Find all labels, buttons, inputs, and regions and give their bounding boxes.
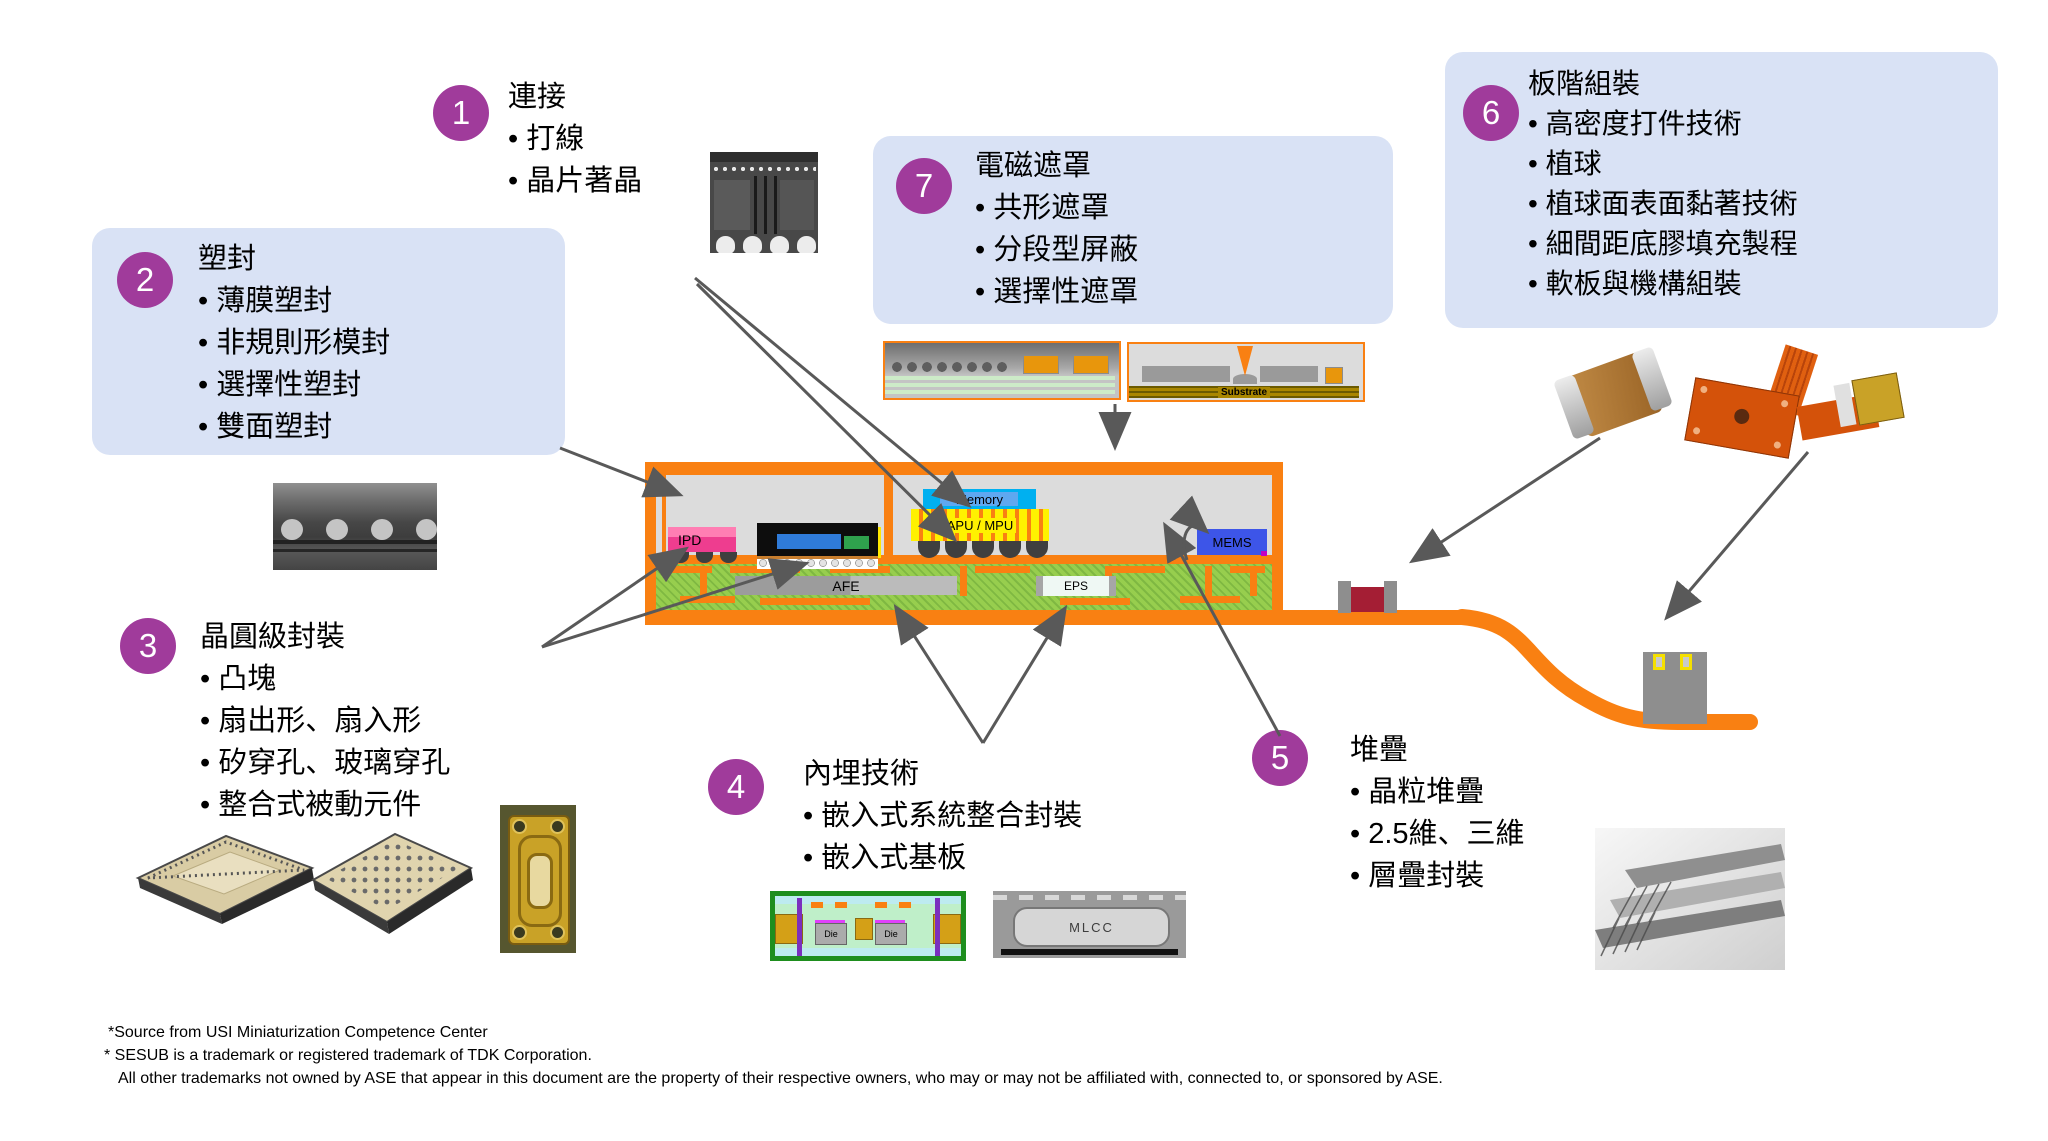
substrate-label: Substrate (1218, 387, 1270, 398)
copper-trace (1230, 566, 1265, 573)
bullet-item: 晶片著晶 (508, 160, 642, 202)
die-block: Die (815, 923, 847, 945)
bullet-item: 高密度打件技術 (1528, 104, 1798, 144)
ipd-block: IPD (668, 527, 736, 552)
photo-wire-bond (710, 152, 818, 253)
bullet-item: 植球 (1528, 144, 1798, 184)
bullet-item: 雙面塑封 (198, 406, 390, 448)
callout-5-title: 堆疊 (1350, 729, 1525, 771)
shield-via-line (662, 475, 666, 557)
microbump-row (757, 556, 878, 569)
footnote-sesub: * SESUB is a trademark or registered tra… (104, 1045, 592, 1067)
photo-embedded-mlcc: MLCC (993, 891, 1186, 958)
photo-embedded-die: Die Die (770, 891, 966, 961)
photo-wlcsp-top (128, 824, 323, 926)
callout-2-bullets: 薄膜塑封非規則形模封選擇性塑封雙面塑封 (198, 280, 390, 448)
afe-block: AFE (735, 576, 957, 595)
copper-trace (760, 598, 870, 605)
bullet-item: 植球面表面黏著技術 (1528, 184, 1798, 224)
callout-7-bullets: 共形遮罩分段型屏蔽選擇性遮罩 (975, 187, 1138, 313)
eps-label: EPS (1064, 580, 1088, 592)
bullet-item: 軟板與機構組裝 (1528, 264, 1798, 304)
step-badge-4: 4 (708, 759, 764, 815)
copper-via (960, 566, 967, 596)
callout-4: 內埋技術 嵌入式系統整合封裝嵌入式基板 (803, 753, 1082, 879)
callout-5: 堆疊 晶粒堆疊2.5維、三維層疊封裝 (1350, 729, 1525, 897)
photo-ipd-component (500, 805, 576, 953)
ipd-label: IPD (678, 533, 701, 547)
connector-post (1338, 581, 1351, 613)
callout-7-title: 電磁遮罩 (975, 145, 1138, 187)
diagram-conformal-shield (883, 341, 1121, 400)
bullet-item: 晶粒堆疊 (1350, 771, 1525, 813)
substrate-top-layer (656, 555, 1272, 564)
callout-3-bullets: 凸塊扇出形、扇入形矽穿孔、玻璃穿孔整合式被動元件 (200, 658, 450, 826)
step-badge-1: 1 (433, 85, 489, 141)
mems-label: MEMS (1213, 536, 1252, 549)
connector-pad (1680, 654, 1692, 670)
shield-wedge (1237, 346, 1253, 376)
callout-3-title: 晶圓級封裝 (200, 616, 450, 658)
package-shield-top (645, 462, 1283, 475)
step-badge-2: 2 (117, 252, 173, 308)
copper-trace (1060, 598, 1130, 605)
eps-block: EPS (1036, 576, 1116, 596)
copper-trace (680, 596, 735, 603)
bullet-item: 選擇性遮罩 (975, 271, 1138, 313)
apu-mpu-block: APU / MPU (911, 509, 1049, 541)
die-block: Die (875, 923, 907, 945)
edge-sliver (878, 527, 881, 558)
callout-4-title: 內埋技術 (803, 753, 1082, 795)
die-inner-green (844, 536, 869, 549)
copper-via (1250, 568, 1257, 596)
step-badge-7: 7 (896, 158, 952, 214)
arrow-board-right (1668, 452, 1808, 616)
flip-chip-die (757, 523, 878, 558)
bullet-item: 凸塊 (200, 658, 450, 700)
copper-trace (1180, 596, 1240, 603)
bullet-item: 矽穿孔、玻璃穿孔 (200, 742, 450, 784)
mlcc-body: MLCC (1013, 907, 1170, 947)
copper-trace (1110, 566, 1165, 573)
mems-dot (1261, 551, 1267, 556)
connector-post (1384, 581, 1397, 613)
callout-4-bullets: 嵌入式系統整合封裝嵌入式基板 (803, 795, 1082, 879)
arrow-embed-afe (897, 609, 983, 743)
bullet-item: 層疊封裝 (1350, 855, 1525, 897)
apu-mpu-label: APU / MPU (944, 518, 1016, 533)
footnote-source: *Source from USI Miniaturization Compete… (108, 1022, 488, 1044)
photo-wlcsp-bottom (305, 820, 483, 942)
bullet-item: 薄膜塑封 (198, 280, 390, 322)
die-inner-blue (777, 534, 841, 549)
flex-connector-block (1643, 652, 1707, 724)
arrow-board-left (1414, 438, 1600, 560)
afe-label: AFE (832, 579, 859, 593)
copper-via (700, 566, 707, 596)
callout-1-bullets: 打線晶片著晶 (508, 118, 642, 202)
memory-block: Memory (923, 489, 1036, 509)
photo-solder-balls (273, 483, 437, 570)
copper-via (1205, 566, 1212, 596)
callout-3: 晶圓級封裝 凸塊扇出形、扇入形矽穿孔、玻璃穿孔整合式被動元件 (200, 616, 450, 826)
footnote-trademarks: All other trademarks not owned by ASE th… (118, 1068, 1443, 1090)
callout-6: 板階組裝 高密度打件技術植球植球面表面黏著技術細間距底膠填充製程軟板與機構組裝 (1528, 64, 1798, 304)
bullet-item: 共形遮罩 (975, 187, 1138, 229)
bullet-item: 嵌入式系統整合封裝 (803, 795, 1082, 837)
photo-flex-pcb (1687, 348, 1905, 458)
photo-stacked-die (1595, 828, 1785, 970)
copper-trace (975, 566, 1030, 573)
mems-block: MEMS (1197, 529, 1267, 555)
callout-2: 塑封 薄膜塑封非規則形模封選擇性塑封雙面塑封 (198, 238, 390, 448)
step-badge-3: 3 (120, 618, 176, 674)
callout-7: 電磁遮罩 共形遮罩分段型屏蔽選擇性遮罩 (975, 145, 1138, 313)
bullet-item: 扇出形、扇入形 (200, 700, 450, 742)
bullet-item: 打線 (508, 118, 642, 160)
compartment-divider (884, 475, 893, 557)
arrow-embed-eps (983, 610, 1064, 743)
bullet-item: 非規則形模封 (198, 322, 390, 364)
bullet-item: 2.5維、三維 (1350, 813, 1525, 855)
callout-1: 連接 打線晶片著晶 (508, 76, 642, 202)
connector-pad (1653, 654, 1665, 670)
package-shield-left (645, 462, 656, 612)
bullet-item: 細間距底膠填充製程 (1528, 224, 1798, 264)
diagram-compartment-shield: Substrate (1127, 342, 1365, 402)
photo-mlcc-capacitor (1563, 342, 1668, 452)
callout-6-title: 板階組裝 (1528, 64, 1798, 104)
bullet-item: 選擇性塑封 (198, 364, 390, 406)
step-badge-6: 6 (1463, 85, 1519, 141)
slide-canvas: 1 2 3 4 5 6 7 連接 打線晶片著晶 塑封 薄膜塑封非規則形模封選擇性… (0, 0, 2048, 1141)
callout-2-title: 塑封 (198, 238, 390, 280)
step-badge-5: 5 (1252, 730, 1308, 786)
bullet-item: 嵌入式基板 (803, 837, 1082, 879)
bullet-item: 分段型屏蔽 (975, 229, 1138, 271)
callout-1-title: 連接 (508, 76, 642, 118)
callout-5-bullets: 晶粒堆疊2.5維、三維層疊封裝 (1350, 771, 1525, 897)
package-shield-right (1272, 462, 1283, 612)
callout-6-bullets: 高密度打件技術植球植球面表面黏著技術細間距底膠填充製程軟板與機構組裝 (1528, 104, 1798, 304)
memory-label: Memory (956, 493, 1003, 506)
flex-component (1351, 587, 1384, 612)
